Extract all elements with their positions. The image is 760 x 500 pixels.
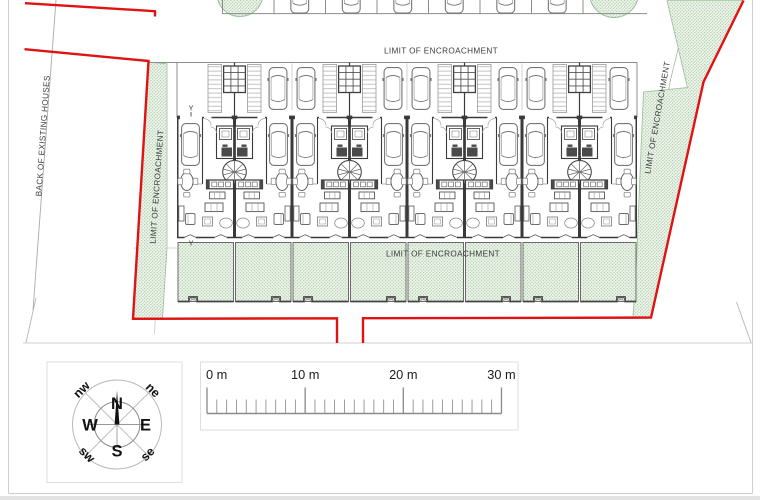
bin-store-group [208,63,261,118]
compass-s-label: S [111,443,122,461]
scale-label-20m: 20 m [389,367,417,382]
house-unit [234,116,292,239]
street-parking-row [223,0,648,14]
street-parked-car [444,0,465,13]
scale-bar: 0 m 10 m 20 m 30 m [201,362,519,430]
bin-store-group [323,63,376,118]
rear-garden-plot [293,243,349,302]
house-terrace [177,116,637,239]
parked-car [410,68,431,110]
bin-store-group [438,63,491,118]
scale-label-0m: 0 m [206,367,227,382]
street-parked-car [547,0,568,13]
street-parked-car [341,0,362,13]
parked-car [267,68,288,110]
parked-car [295,68,316,110]
back-of-existing-houses-label: BACK OF EXISTING HOUSES [34,75,51,197]
house-unit [579,116,637,239]
left-green-strip [133,62,167,318]
limit-of-encroachment-bottom-label: LIMIT OF ENCROACHMENT [386,250,500,259]
house-unit [177,116,235,239]
street-parked-car [392,0,413,13]
site-plan-svg: LIMIT OF ENCROACHMENT LIMIT OF ENCROACHM… [0,0,760,500]
house-unit [464,116,522,239]
compass-rose: N S W E nw ne sw se [47,362,182,483]
limit-of-encroachment-top-label: LIMIT OF ENCROACHMENT [384,47,498,56]
scale-label-30m: 30 m [487,367,515,382]
section-marker-y-top: Y [189,104,194,113]
house-unit [292,116,350,239]
section-marker-y-bottom: Y [189,239,194,248]
compass-e-label: E [140,417,151,435]
compass-n-label: N [111,395,123,413]
parked-car [497,68,518,110]
forecourt-parking-row [150,63,637,118]
street-parked-car [495,0,516,13]
street-parked-car [289,0,310,13]
rear-garden-plot [581,243,637,302]
house-unit [349,116,407,239]
compass-w-label: W [82,417,98,435]
boundary-line-topleft [25,3,155,16]
scale-label-10m: 10 m [291,367,319,382]
bin-store-group [553,63,606,118]
parked-car [608,68,629,110]
drawing-sheet: LIMIT OF ENCROACHMENT LIMIT OF ENCROACHM… [0,0,760,500]
parked-car [525,68,546,110]
house-unit [522,116,580,239]
parked-car [382,68,403,110]
house-unit [407,116,465,239]
rear-garden-plot [523,243,579,302]
rear-garden-plot [236,243,292,302]
rear-garden-plot [178,243,234,302]
tree [590,0,639,18]
